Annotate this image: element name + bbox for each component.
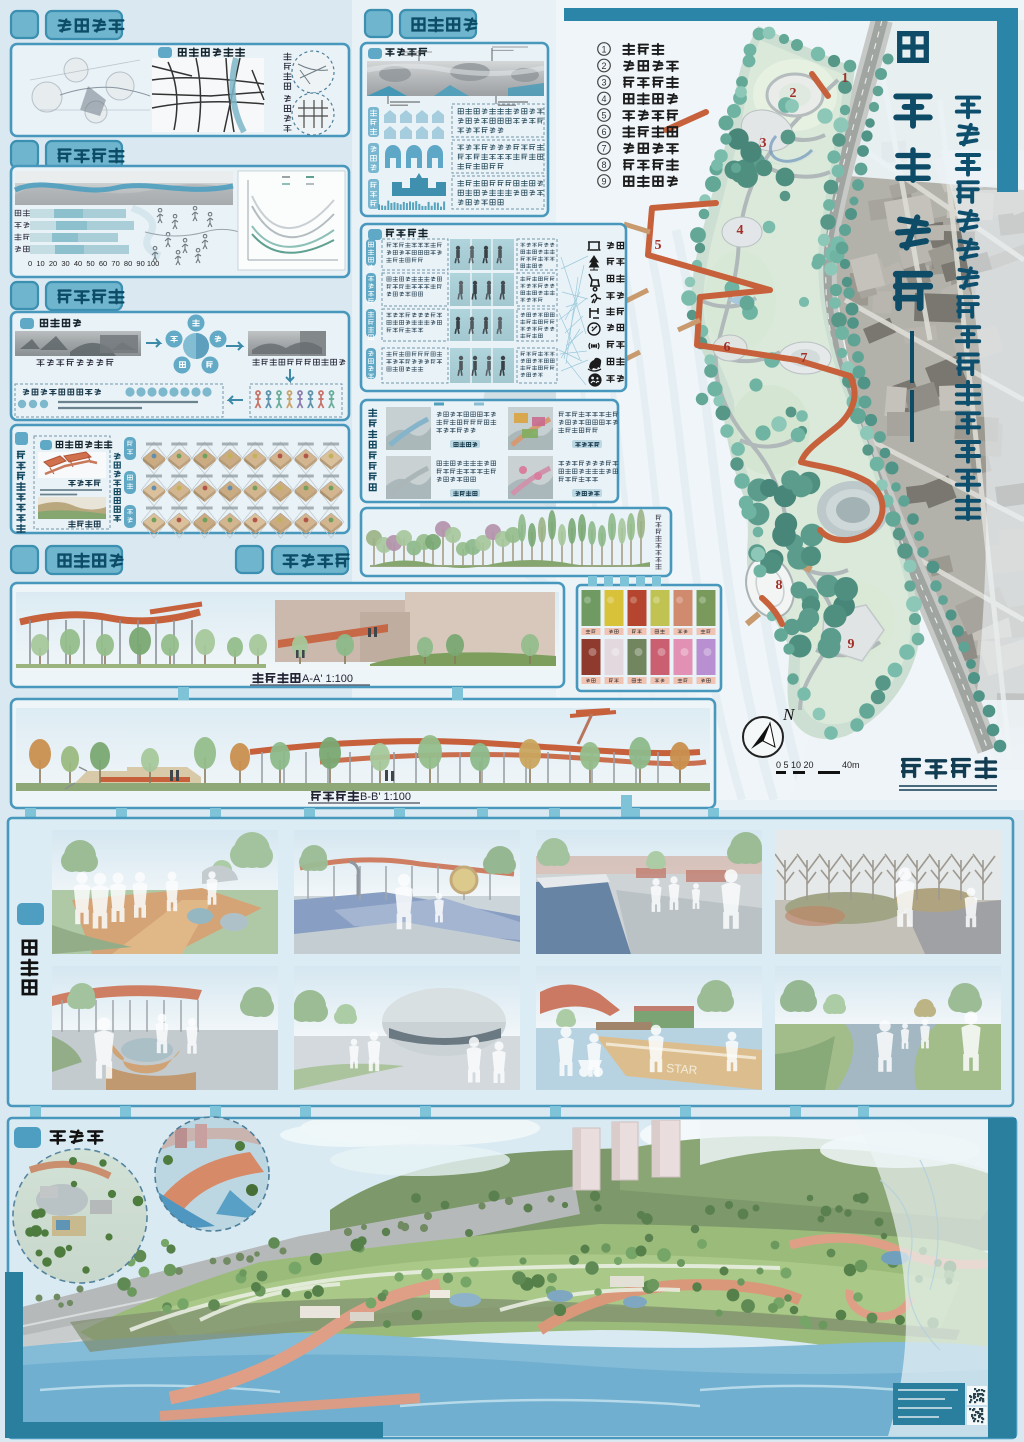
svg-text:N: N — [782, 705, 796, 724]
svg-text:8: 8 — [601, 160, 606, 170]
svg-text:3: 3 — [760, 136, 767, 151]
svg-text:3: 3 — [601, 78, 606, 88]
svg-text:A-A' 1:100: A-A' 1:100 — [302, 673, 353, 685]
svg-text:4: 4 — [737, 223, 744, 238]
svg-text:9: 9 — [601, 177, 606, 187]
svg-text:1: 1 — [842, 71, 849, 86]
svg-text:5: 5 — [601, 111, 606, 121]
svg-text:1: 1 — [601, 45, 606, 55]
svg-text:7: 7 — [801, 351, 808, 366]
svg-text:6: 6 — [724, 340, 731, 355]
svg-text:2: 2 — [790, 86, 797, 101]
svg-text:8: 8 — [776, 578, 783, 593]
svg-text:4: 4 — [601, 94, 606, 104]
svg-text:40m: 40m — [842, 760, 860, 770]
svg-text:9: 9 — [848, 637, 855, 652]
svg-text:B-B' 1:100: B-B' 1:100 — [360, 791, 411, 803]
svg-text:0 10 20 30 40 50 60 70: 0 10 20 30 40 50 60 70 80 90 100 — [28, 259, 159, 268]
svg-text:0 5 10 20: 0 5 10 20 — [776, 760, 814, 770]
svg-text:6: 6 — [601, 127, 606, 137]
svg-text:2: 2 — [601, 61, 606, 71]
svg-text:7: 7 — [601, 144, 606, 154]
svg-text:5: 5 — [655, 238, 662, 253]
